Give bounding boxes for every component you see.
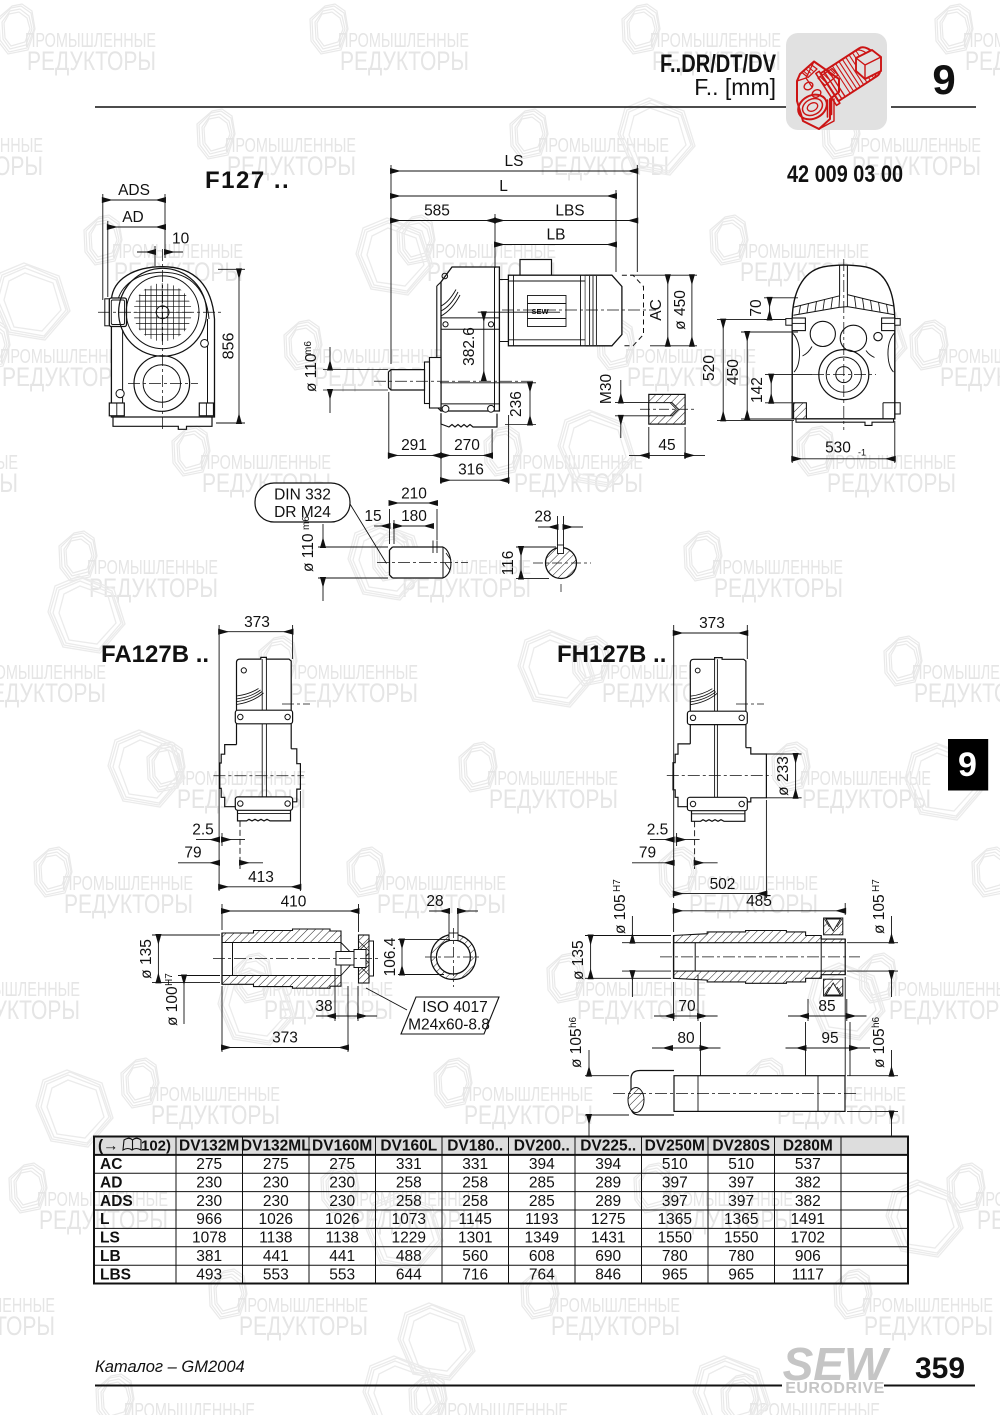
svg-text:510: 510	[662, 1156, 688, 1173]
svg-text:ø 233: ø 233	[775, 756, 792, 796]
svg-text:1550: 1550	[658, 1230, 693, 1247]
svg-text:230: 230	[329, 1193, 355, 1210]
svg-text:1349: 1349	[525, 1230, 559, 1247]
svg-text:1026: 1026	[325, 1211, 359, 1228]
svg-text:608: 608	[529, 1248, 555, 1265]
svg-text:382.6: 382.6	[461, 327, 478, 366]
svg-text:9: 9	[932, 56, 955, 103]
svg-text:EURODRIVE: EURODRIVE	[785, 1380, 885, 1397]
svg-text:258: 258	[396, 1175, 422, 1192]
svg-text:106.4: 106.4	[382, 937, 399, 976]
svg-text:965: 965	[728, 1266, 754, 1283]
svg-text:M30: M30	[598, 374, 615, 405]
svg-text:230: 230	[196, 1175, 222, 1192]
svg-text:441: 441	[263, 1248, 289, 1265]
svg-text:DIN 332: DIN 332	[274, 487, 331, 504]
svg-text:79: 79	[639, 845, 656, 862]
svg-text:373: 373	[244, 614, 270, 631]
svg-text:230: 230	[263, 1193, 289, 1210]
svg-text:258: 258	[462, 1193, 488, 1210]
svg-text:585: 585	[424, 203, 450, 220]
svg-text:397: 397	[662, 1175, 688, 1192]
svg-text:373: 373	[272, 1030, 298, 1047]
svg-text:210: 210	[401, 486, 427, 503]
svg-text:258: 258	[462, 1175, 488, 1192]
svg-text:275: 275	[263, 1156, 289, 1173]
svg-text:h6: h6	[568, 1016, 579, 1028]
svg-text:-1: -1	[858, 448, 866, 458]
svg-text:9: 9	[958, 746, 977, 784]
svg-text:F.. [mm]: F.. [mm]	[694, 74, 776, 100]
svg-text:45: 45	[658, 437, 675, 454]
svg-text:DV225..: DV225..	[580, 1138, 636, 1155]
svg-text:1078: 1078	[192, 1230, 226, 1247]
svg-text:1365: 1365	[658, 1211, 692, 1228]
svg-text:ø 105: ø 105	[871, 1028, 888, 1068]
svg-text:L: L	[100, 1211, 109, 1228]
svg-text:2.5: 2.5	[192, 822, 214, 839]
svg-text:291: 291	[401, 437, 427, 454]
svg-text:L: L	[499, 178, 508, 195]
svg-text:316: 316	[458, 462, 484, 479]
svg-text:1301: 1301	[458, 1230, 492, 1247]
svg-text:382: 382	[795, 1175, 821, 1192]
svg-text:AD: AD	[122, 209, 144, 226]
svg-text:102): 102)	[141, 1138, 171, 1155]
svg-text:DV132ML: DV132ML	[241, 1138, 311, 1155]
svg-text:553: 553	[263, 1266, 289, 1283]
svg-text:1702: 1702	[791, 1230, 825, 1247]
svg-text:846: 846	[595, 1266, 621, 1283]
svg-text:285: 285	[529, 1175, 555, 1192]
svg-text:ISO 4017: ISO 4017	[422, 999, 488, 1016]
svg-text:D280M: D280M	[783, 1138, 833, 1155]
svg-text:856: 856	[221, 333, 238, 360]
svg-text:LS: LS	[100, 1230, 120, 1247]
svg-text:258: 258	[396, 1193, 422, 1210]
svg-text:764: 764	[529, 1266, 555, 1283]
svg-text:LS: LS	[505, 153, 524, 170]
svg-text:70: 70	[748, 299, 765, 317]
svg-text:413: 413	[248, 869, 274, 886]
svg-text:2.5: 2.5	[647, 822, 669, 839]
svg-text:394: 394	[529, 1156, 555, 1173]
svg-text:382: 382	[795, 1193, 821, 1210]
svg-text:493: 493	[196, 1266, 222, 1283]
svg-text:ø 105: ø 105	[612, 894, 629, 934]
svg-text:1073: 1073	[392, 1211, 426, 1228]
svg-text:ø 110: ø 110	[303, 353, 320, 392]
svg-text:230: 230	[196, 1193, 222, 1210]
svg-text:1431: 1431	[591, 1230, 625, 1247]
svg-text:275: 275	[329, 1156, 355, 1173]
svg-text:15: 15	[364, 508, 381, 525]
svg-text:116: 116	[500, 551, 517, 576]
svg-text:331: 331	[396, 1156, 422, 1173]
svg-text:h6: h6	[871, 1016, 882, 1028]
svg-text:560: 560	[462, 1248, 488, 1265]
svg-text:M24x60-8.8: M24x60-8.8	[408, 1017, 490, 1034]
svg-text:ø 135: ø 135	[138, 939, 155, 979]
svg-text:690: 690	[595, 1248, 621, 1265]
svg-text:42 009 03 00: 42 009 03 00	[787, 161, 903, 188]
svg-text:510: 510	[728, 1156, 754, 1173]
svg-text:553: 553	[329, 1266, 355, 1283]
svg-text:ø 135: ø 135	[570, 940, 587, 980]
svg-text:DV180..: DV180..	[447, 1138, 503, 1155]
svg-text:H7: H7	[871, 879, 882, 892]
svg-text:485: 485	[746, 893, 772, 910]
svg-text:F127 ..: F127 ..	[205, 167, 290, 194]
svg-text:488: 488	[396, 1248, 422, 1265]
svg-text:397: 397	[662, 1193, 688, 1210]
svg-text:906: 906	[795, 1248, 821, 1265]
svg-text:1491: 1491	[791, 1211, 825, 1228]
svg-text:1138: 1138	[259, 1230, 292, 1247]
svg-text:410: 410	[281, 894, 307, 911]
svg-text:397: 397	[728, 1175, 754, 1192]
svg-text:236: 236	[508, 391, 525, 417]
svg-text:38: 38	[315, 998, 332, 1015]
svg-text:m6: m6	[303, 341, 314, 355]
svg-text:AC: AC	[100, 1156, 122, 1173]
svg-text:289: 289	[595, 1193, 621, 1210]
svg-text:LB: LB	[100, 1248, 121, 1265]
svg-text:DV132M: DV132M	[179, 1138, 239, 1155]
svg-text:289: 289	[595, 1175, 621, 1192]
svg-text:ADS: ADS	[100, 1193, 133, 1210]
svg-text:537: 537	[795, 1156, 821, 1173]
svg-text:AD: AD	[100, 1175, 122, 1192]
svg-text:79: 79	[184, 845, 201, 862]
svg-text:1550: 1550	[724, 1230, 759, 1247]
svg-text:DV160M: DV160M	[312, 1138, 372, 1155]
svg-text:530: 530	[825, 440, 851, 457]
svg-text:H7: H7	[164, 973, 175, 986]
svg-text:275: 275	[196, 1156, 222, 1173]
svg-text:450: 450	[725, 359, 742, 385]
svg-text:441: 441	[329, 1248, 355, 1265]
svg-text:520: 520	[701, 355, 718, 381]
svg-text:1138: 1138	[326, 1230, 359, 1247]
svg-text:1026: 1026	[259, 1211, 293, 1228]
svg-text:ADS: ADS	[118, 182, 150, 199]
svg-text:(→: (→	[98, 1138, 119, 1155]
svg-text:FA127B ..: FA127B ..	[101, 641, 209, 668]
svg-text:LBS: LBS	[100, 1266, 131, 1283]
svg-text:180: 180	[401, 508, 427, 525]
svg-text:AC: AC	[648, 299, 665, 321]
svg-text:ø 450: ø 450	[672, 290, 689, 330]
svg-text:270: 270	[454, 437, 480, 454]
svg-text:FH127B ..: FH127B ..	[557, 641, 666, 668]
svg-text:DV280S: DV280S	[712, 1138, 770, 1155]
svg-text:ø 105: ø 105	[871, 894, 888, 934]
svg-text:142: 142	[749, 377, 766, 403]
svg-text:966: 966	[196, 1211, 222, 1228]
svg-text:ø 100: ø 100	[164, 986, 181, 1026]
svg-text:230: 230	[263, 1175, 289, 1192]
svg-text:285: 285	[529, 1193, 555, 1210]
svg-text:502: 502	[710, 876, 736, 893]
svg-text:230: 230	[329, 1175, 355, 1192]
svg-text:716: 716	[462, 1266, 488, 1283]
svg-text:DV200..: DV200..	[514, 1138, 570, 1155]
svg-text:80: 80	[677, 1030, 695, 1047]
svg-text:1365: 1365	[724, 1211, 758, 1228]
svg-text:331: 331	[462, 1156, 488, 1173]
svg-text:1275: 1275	[591, 1211, 625, 1228]
svg-text:381: 381	[196, 1248, 222, 1265]
svg-text:780: 780	[728, 1248, 754, 1265]
svg-text:359: 359	[915, 1352, 965, 1385]
svg-text:70: 70	[678, 998, 696, 1015]
svg-text:373: 373	[699, 615, 725, 632]
svg-text:LBS: LBS	[555, 203, 584, 220]
svg-text:SEW: SEW	[531, 307, 549, 316]
svg-text:1117: 1117	[792, 1266, 824, 1283]
svg-text:965: 965	[662, 1266, 688, 1283]
svg-text:95: 95	[821, 1030, 838, 1047]
svg-text:Каталог – GM2004: Каталог – GM2004	[95, 1358, 245, 1376]
svg-text:m6: m6	[301, 516, 312, 530]
svg-text:1145: 1145	[459, 1211, 492, 1228]
svg-text:85: 85	[818, 998, 835, 1015]
svg-text:ø 110: ø 110	[300, 533, 317, 572]
svg-text:394: 394	[595, 1156, 621, 1173]
svg-text:397: 397	[728, 1193, 754, 1210]
svg-text:LB: LB	[547, 227, 566, 244]
svg-text:H7: H7	[612, 879, 623, 892]
svg-text:1229: 1229	[392, 1230, 426, 1247]
svg-text:28: 28	[426, 893, 443, 910]
svg-text:DV250M: DV250M	[645, 1138, 705, 1155]
svg-text:644: 644	[396, 1266, 422, 1283]
svg-text:28: 28	[534, 509, 551, 526]
svg-text:1193: 1193	[525, 1211, 558, 1228]
svg-text:10: 10	[172, 231, 190, 248]
svg-text:780: 780	[662, 1248, 688, 1265]
svg-text:DV160L: DV160L	[380, 1138, 437, 1155]
svg-text:ø 105: ø 105	[568, 1028, 585, 1068]
